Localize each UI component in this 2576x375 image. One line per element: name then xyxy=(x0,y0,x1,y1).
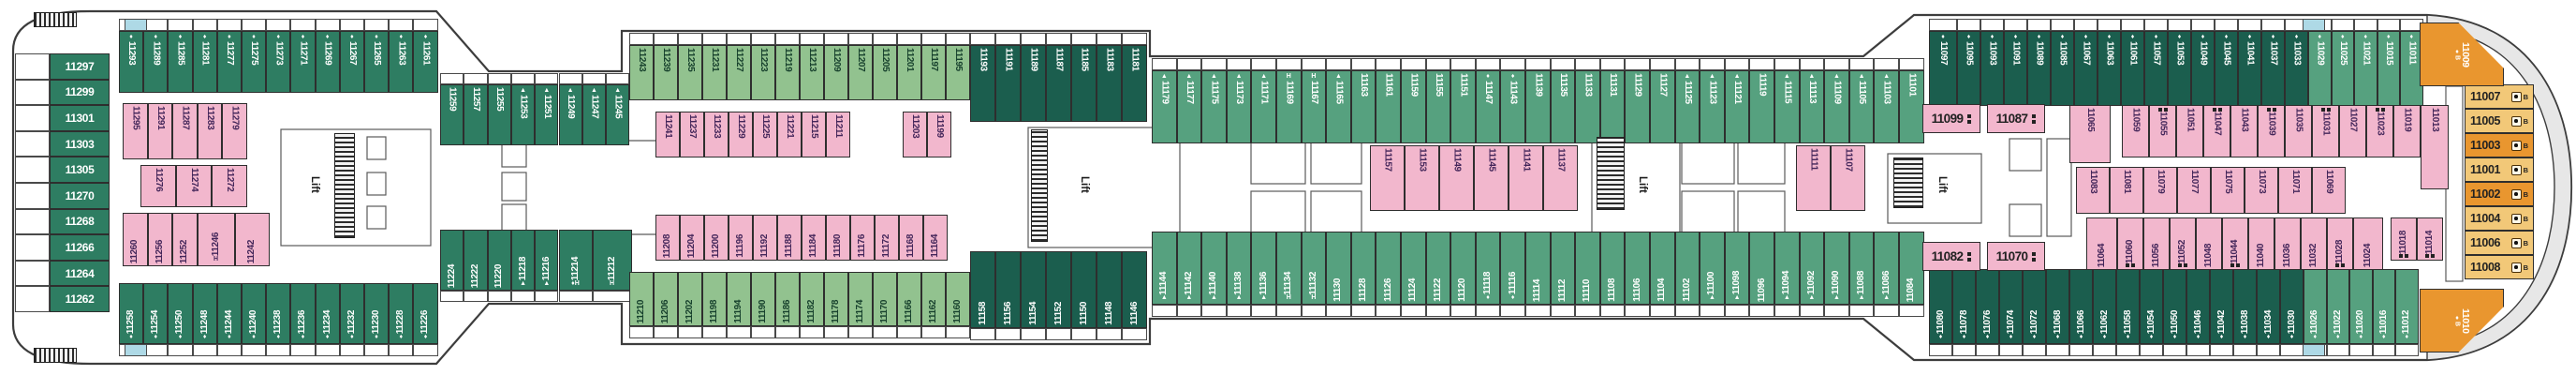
cabin-11238[interactable]: 11238♦ xyxy=(266,283,290,356)
cabin-11116[interactable]: 11116♦ xyxy=(1500,232,1525,317)
cabin-11105[interactable]: ▲11105 xyxy=(1849,58,1875,143)
cabin-11264[interactable]: 11264 xyxy=(15,261,110,287)
cabin-11095[interactable]: ♦11095 xyxy=(1957,19,1980,106)
cabin-11074[interactable]: 11074♦ xyxy=(1999,269,2023,356)
cabin-11057[interactable]: ♦11057 xyxy=(2144,19,2168,106)
cabin-11123[interactable]: ▲11123 xyxy=(1700,58,1725,143)
cabin-11112[interactable]: 11112 xyxy=(1551,232,1576,317)
cabin-11018[interactable]: 11018 xyxy=(2391,217,2417,261)
cabin-11025[interactable]: ♦11025 xyxy=(2332,19,2355,106)
cabin-11241[interactable]: 11241 xyxy=(655,112,680,157)
cabin-11247[interactable]: ▲11247 xyxy=(582,73,606,145)
cabin-11090[interactable]: 11090▲ xyxy=(1824,232,1849,317)
cabin-11092[interactable]: 11092▲ xyxy=(1800,232,1825,317)
cabin-11242[interactable]: 11242 xyxy=(235,213,270,266)
balcony xyxy=(1097,328,1122,340)
cabin-11255[interactable]: 11255 xyxy=(488,73,511,145)
cabin-11274[interactable]: 11274 xyxy=(176,165,212,207)
cabin-11024[interactable]: 11024 xyxy=(2353,217,2383,270)
cabin-11061[interactable]: ♦11061 xyxy=(2121,19,2144,106)
cabin-11303[interactable]: 11303 xyxy=(15,131,110,157)
cabin-11277[interactable]: ♦11277 xyxy=(217,19,242,93)
cabin-11279[interactable]: 11279 xyxy=(222,103,247,159)
cabin-11171[interactable]: ▲11171 xyxy=(1251,58,1276,143)
cabin-11011[interactable]: ♦11011 xyxy=(2400,19,2423,106)
cabin-11257[interactable]: 11257 xyxy=(464,73,487,145)
cabin-11170[interactable]: 11170 xyxy=(873,272,897,338)
cabin-11044[interactable]: 11044 xyxy=(2222,217,2248,270)
cabin-11261[interactable]: ♦11261 xyxy=(413,19,437,93)
cabin-11113[interactable]: ▲11113 xyxy=(1800,58,1825,143)
cabin-11150[interactable]: 11150 xyxy=(1071,251,1097,340)
cabin-11276[interactable]: 11276 xyxy=(140,165,176,207)
cabin-11190[interactable]: 11190 xyxy=(751,272,775,338)
cabin-11226[interactable]: 11226♦ xyxy=(413,283,437,356)
cabin-11114[interactable]: 11114 xyxy=(1525,232,1551,317)
cabin-11084[interactable]: 11084 xyxy=(1899,232,1924,317)
cabin-11134[interactable]: 11134H xyxy=(1276,232,1302,317)
cabin-11184[interactable]: 11184 xyxy=(802,215,826,261)
cabin-11146[interactable]: 11146 xyxy=(1122,251,1147,340)
cabin-11233[interactable]: 11233 xyxy=(704,112,729,157)
cabin-11127[interactable]: 11127 xyxy=(1650,58,1675,143)
cabin-11253[interactable]: ▲11253 xyxy=(511,73,535,145)
cabin-11058[interactable]: 11058♦ xyxy=(2116,269,2140,356)
bed-marker-icon: ▲ xyxy=(1833,73,1840,81)
cabin-11215[interactable]: 11215 xyxy=(802,112,826,157)
cabin-11198[interactable]: 11198 xyxy=(702,272,727,338)
cabin-11139[interactable]: 11139 xyxy=(1525,58,1551,143)
cabin-11235[interactable]: 11235 xyxy=(678,33,702,100)
cabin-11176[interactable]: 11176 xyxy=(850,215,875,261)
cabin-11179[interactable]: ▲11179 xyxy=(1152,58,1177,143)
cabin-11071[interactable]: 11071 xyxy=(2278,167,2312,214)
cabin-11038[interactable]: 11038♦ xyxy=(2233,269,2257,356)
cabin-11259[interactable]: 11259 xyxy=(440,73,464,145)
cabin-11155[interactable]: 11155 xyxy=(1426,58,1451,143)
cabin-11186[interactable]: 11186 xyxy=(775,272,800,338)
cabin-11244[interactable]: 11244♦ xyxy=(217,283,242,356)
balcony xyxy=(316,19,340,31)
cabin-11120[interactable]: 11120 xyxy=(1450,232,1476,317)
cabin-number: 11212 xyxy=(608,257,617,280)
cabin-11263[interactable]: ♦11263 xyxy=(389,19,413,93)
cabin-11100[interactable]: 11100▲ xyxy=(1700,232,1725,317)
cabin-11073[interactable]: 11073 xyxy=(2245,167,2278,214)
cabin-11101[interactable]: 11101 xyxy=(1899,58,1924,143)
cabin-11250[interactable]: 11250♦ xyxy=(168,283,192,356)
cabin-11182[interactable]: 11182 xyxy=(800,272,824,338)
cabin-11013[interactable]: 11013 xyxy=(2421,105,2449,189)
cabin-11037[interactable]: ♦11037 xyxy=(2261,19,2285,106)
cabin-11005[interactable]: 11005B xyxy=(2465,109,2534,133)
cabin-11161[interactable]: 11161 xyxy=(1376,58,1401,143)
cabin-11187[interactable]: 11187 xyxy=(1046,33,1071,122)
cabin-11119[interactable]: 11119 xyxy=(1749,58,1774,143)
cabin-11174[interactable]: 11174 xyxy=(848,272,873,338)
cabin-11229[interactable]: 11229 xyxy=(729,112,753,157)
cabin-11006[interactable]: 11006B xyxy=(2465,231,2534,255)
cabin-11031[interactable]: 11031 xyxy=(2312,105,2339,157)
cabin-11075[interactable]: 11075 xyxy=(2211,167,2245,214)
cabin-11268[interactable]: 11268 xyxy=(15,209,110,235)
cabin-11059[interactable]: 11059 xyxy=(2122,105,2149,157)
bed-marker-icon: ▲ xyxy=(1833,294,1840,302)
cabin-11036[interactable]: 11036 xyxy=(2274,217,2301,270)
cabin-11299[interactable]: 11299 xyxy=(15,80,110,106)
cabin-11204[interactable]: 11204 xyxy=(680,215,704,261)
cabin-11081[interactable]: 11081 xyxy=(2110,167,2143,214)
cabin-11124[interactable]: 11124 xyxy=(1401,232,1426,317)
cabin-11297[interactable]: 11297 xyxy=(15,53,110,80)
cabin-11231[interactable]: 11231 xyxy=(702,33,727,100)
cabin-11232[interactable]: 11232♦ xyxy=(340,283,364,356)
cabin-11227[interactable]: 11227 xyxy=(727,33,751,100)
cabin-11220[interactable]: 11220 xyxy=(488,230,511,302)
cabin-11266[interactable]: 11266 xyxy=(15,234,110,261)
cabin-body: 11172 xyxy=(875,215,899,261)
cabin-11195[interactable]: 11195 xyxy=(946,33,970,100)
cabin-11072[interactable]: 11072♦ xyxy=(2023,269,2046,356)
cabin-11194[interactable]: 11194 xyxy=(727,272,751,338)
cabin-11028[interactable]: 11028 xyxy=(2327,217,2353,270)
cabin-11052[interactable]: 11052 xyxy=(2170,217,2196,270)
balcony xyxy=(535,73,558,84)
cabin-11091[interactable]: ♦11091 xyxy=(2004,19,2027,106)
cabin-11029[interactable]: ♦11029 xyxy=(2308,19,2332,106)
cabin-11056[interactable]: 11056 xyxy=(2143,217,2170,270)
cabin-11166[interactable]: 11166 xyxy=(897,272,921,338)
cabin-11197[interactable]: 11197 xyxy=(921,33,946,100)
cabin-11283[interactable]: 11283 xyxy=(198,103,223,159)
cabin-11183[interactable]: 11183 xyxy=(1097,33,1122,122)
cabin-11192[interactable]: 11192 xyxy=(753,215,777,261)
cabin-11104[interactable]: 11104 xyxy=(1650,232,1675,317)
cabin-11138[interactable]: 11138▲ xyxy=(1227,232,1252,317)
cabin-11049[interactable]: ♦11049 xyxy=(2191,19,2215,106)
balcony xyxy=(15,80,50,106)
cabin-11230[interactable]: 11230♦ xyxy=(364,283,389,356)
cabin-11214[interactable]: 11214♦H xyxy=(559,230,593,302)
cabin-11140[interactable]: 11140▲ xyxy=(1201,232,1227,317)
cabin-11128[interactable]: 11128 xyxy=(1351,232,1376,317)
cabin-11267[interactable]: ♦11267 xyxy=(340,19,364,93)
cabin-11254[interactable]: 11254♦ xyxy=(143,283,168,356)
cabin-11121[interactable]: ▲11121 xyxy=(1725,58,1750,143)
cabin-11078[interactable]: 11078♦ xyxy=(1952,269,1976,356)
cabin-11115[interactable]: ▲11115 xyxy=(1774,58,1800,143)
cabin-11086[interactable]: 11086▲ xyxy=(1874,232,1899,317)
cabin-11172[interactable]: 11172 xyxy=(875,215,899,261)
cabin-11153[interactable]: 11153 xyxy=(1405,145,1439,211)
cabin-11131[interactable]: 11131 xyxy=(1600,58,1626,143)
cabin-11160[interactable]: 11160 xyxy=(946,272,970,338)
cabin-11245[interactable]: ▲11245 xyxy=(606,73,629,145)
cabin-11045[interactable]: ♦11045 xyxy=(2215,19,2238,106)
cabin-11149[interactable]: 11149 xyxy=(1439,145,1474,211)
balcony xyxy=(2098,19,2121,31)
cabin-11213[interactable]: 11213 xyxy=(800,33,824,100)
cabin-11228[interactable]: 11228♦ xyxy=(389,283,413,356)
cabin-11289[interactable]: ♦11289 xyxy=(143,19,168,93)
cabin-11251[interactable]: ▲11251 xyxy=(535,73,558,145)
cabin-11122[interactable]: 11122 xyxy=(1426,232,1451,317)
cabin-11068[interactable]: 11068♦ xyxy=(2046,269,2069,356)
cabin-11167[interactable]: H11167 xyxy=(1302,58,1327,143)
cabin-11147[interactable]: ♦11147 xyxy=(1476,58,1501,143)
balcony xyxy=(168,344,192,356)
cabin-11111[interactable]: 11111 xyxy=(1796,145,1831,211)
cabin-11206[interactable]: 11206 xyxy=(654,272,678,338)
cabin-11181[interactable]: 11181 xyxy=(1122,33,1147,122)
cabin-11224[interactable]: 11224 xyxy=(440,230,464,302)
cabin-11096[interactable]: 11096 xyxy=(1749,232,1774,317)
cabin-11012[interactable]: 11012♦ xyxy=(2395,269,2419,356)
cabin-11305[interactable]: 11305 xyxy=(15,157,110,183)
cabin-11002[interactable]: 11002B xyxy=(2465,182,2534,206)
cabin-11089[interactable]: ♦11089 xyxy=(2027,19,2051,106)
cabin-number: 11092 xyxy=(1807,271,1817,294)
cabin-11132[interactable]: 11132H xyxy=(1302,232,1327,317)
cabin-11165[interactable]: ▲11165 xyxy=(1326,58,1351,143)
cabin-number: 11109 xyxy=(1832,81,1841,104)
cabin-11054[interactable]: 11054♦ xyxy=(2140,269,2163,356)
cabin-11260[interactable]: 11260 xyxy=(123,213,148,266)
cabin-11265[interactable]: ♦11265 xyxy=(364,19,389,93)
cabin-11157[interactable]: 11157 xyxy=(1370,145,1405,211)
cabin-11032[interactable]: 11032 xyxy=(2301,217,2327,270)
cabin-11103[interactable]: ▲11103 xyxy=(1874,58,1899,143)
cabin-11050[interactable]: 11050♦ xyxy=(2163,269,2186,356)
cabin-11185[interactable]: 11185 xyxy=(1071,33,1097,122)
cabin-11151[interactable]: 11151 xyxy=(1450,58,1476,143)
cabin-11076[interactable]: 11076♦ xyxy=(1976,269,1999,356)
cabin-11118[interactable]: 11118♦ xyxy=(1476,232,1501,317)
cabin-11202[interactable]: 11202 xyxy=(678,272,702,338)
cabin-body: 11268 xyxy=(50,209,110,235)
cabin-11020[interactable]: 11020♦ xyxy=(2349,269,2373,356)
cabin-11069[interactable]: 11069 xyxy=(2312,167,2346,214)
cabin-11107[interactable]: 11107 xyxy=(1831,145,1865,211)
cabin-11014[interactable]: 11014 xyxy=(2417,217,2443,261)
cabin-11008[interactable]: 11008B xyxy=(2465,255,2534,279)
cabin-11291[interactable]: 11291 xyxy=(148,103,173,159)
cabin-11109[interactable]: ▲11109 xyxy=(1824,58,1849,143)
cabin-11143[interactable]: ♦11143 xyxy=(1500,58,1525,143)
cabin-11271[interactable]: ♦11271 xyxy=(290,19,315,93)
cabin-11015[interactable]: ♦11015 xyxy=(2377,19,2401,106)
cabin-11221[interactable]: 11221 xyxy=(777,112,802,157)
cabin-11046[interactable]: 11046♦ xyxy=(2186,269,2210,356)
cabin-11039[interactable]: 11039 xyxy=(2258,105,2285,157)
cabin-11062[interactable]: 11062♦ xyxy=(2093,269,2116,356)
cabin-11191[interactable]: 11191 xyxy=(995,33,1021,122)
cabin-11222[interactable]: 11222 xyxy=(464,230,487,302)
cabin-11272[interactable]: 11272 xyxy=(212,165,247,207)
cabin-11087[interactable]: 11087 xyxy=(1987,104,2045,133)
cabin-11070[interactable]: 11070 xyxy=(1987,242,2045,271)
cabin-11077[interactable]: 11077 xyxy=(2177,167,2211,214)
cabin-11252[interactable]: 11252 xyxy=(172,213,198,266)
cabin-11189[interactable]: 11189 xyxy=(1021,33,1046,122)
cabin-11234[interactable]: 11234♦ xyxy=(316,283,340,356)
cabin-11281[interactable]: ♦11281 xyxy=(193,19,217,93)
cabin-11178[interactable]: 11178 xyxy=(824,272,848,338)
cabin-11201[interactable]: 11201 xyxy=(897,33,921,100)
cabin-11040[interactable]: 11040 xyxy=(2248,217,2274,270)
cabin-11088[interactable]: 11088▲ xyxy=(1849,232,1875,317)
cabin-11275[interactable]: ♦11275 xyxy=(242,19,266,93)
cabin-11094[interactable]: 11094▲ xyxy=(1774,232,1800,317)
cabin-11248[interactable]: 11248♦ xyxy=(193,283,217,356)
cabin-11133[interactable]: 11133 xyxy=(1575,58,1600,143)
cabin-11053[interactable]: ♦11053 xyxy=(2168,19,2191,106)
cabin-11243[interactable]: 11243 xyxy=(629,33,654,100)
cabin-11211[interactable]: 11211 xyxy=(826,112,850,157)
cabin-11200[interactable]: 11200 xyxy=(704,215,729,261)
cabin-11098[interactable]: 11098▲ xyxy=(1725,232,1750,317)
twin-square-icon xyxy=(2032,114,2036,118)
cabin-11212[interactable]: 11212H xyxy=(593,230,632,302)
cabin-11270[interactable]: 11270 xyxy=(15,183,110,209)
cabin-11055[interactable]: 11055 xyxy=(2149,105,2176,157)
cabin-11225[interactable]: 11225 xyxy=(753,112,777,157)
cabin-11199[interactable]: 11199 xyxy=(927,112,951,157)
cabin-11082[interactable]: 11082 xyxy=(1922,242,1980,271)
cabin-11168[interactable]: 11168 xyxy=(899,215,923,261)
cabin-11237[interactable]: 11237 xyxy=(680,112,704,157)
cabin-11180[interactable]: 11180 xyxy=(826,215,850,261)
cabin-11019[interactable]: 11019 xyxy=(2393,105,2421,157)
cabin-11106[interactable]: 11106 xyxy=(1625,232,1650,317)
cabin-11022[interactable]: 11022♦ xyxy=(2327,269,2350,356)
cabin-11154[interactable]: 11154 xyxy=(1021,251,1046,340)
cabin-11063[interactable]: ♦11063 xyxy=(2098,19,2121,106)
balcony xyxy=(511,291,535,302)
cabin-11021[interactable]: ♦11021 xyxy=(2354,19,2377,106)
cabin-11130[interactable]: 11130 xyxy=(1326,232,1351,317)
cabin-11273[interactable]: ♦11273 xyxy=(266,19,290,93)
cabin-11223[interactable]: 11223 xyxy=(751,33,775,100)
cabin-11295[interactable]: 11295 xyxy=(123,103,148,159)
cabin-11246[interactable]: 11246H xyxy=(198,213,235,266)
cabin-11144[interactable]: 11144▲ xyxy=(1152,232,1177,317)
cabin-11027[interactable]: 11027 xyxy=(2339,105,2366,157)
cabin-11142[interactable]: 11142▲ xyxy=(1177,232,1202,317)
cabin-11205[interactable]: 11205 xyxy=(873,33,897,100)
cabin-11064[interactable]: 11064 xyxy=(2086,217,2117,270)
cabin-11051[interactable]: 11051 xyxy=(2176,105,2203,157)
cabin-11218[interactable]: 11218▲ xyxy=(511,230,535,302)
cabin-11240[interactable]: 11240♦ xyxy=(242,283,266,356)
cabin-11262[interactable]: 11262 xyxy=(15,286,110,312)
cabin-11209[interactable]: 11209 xyxy=(824,33,848,100)
cabin-11287[interactable]: 11287 xyxy=(172,103,198,159)
cabin-11085[interactable]: ♦11085 xyxy=(2051,19,2074,106)
cabin-11030[interactable]: 11030♦ xyxy=(2280,269,2304,356)
cabin-11301[interactable]: 11301 xyxy=(15,105,110,131)
cabin-11067[interactable]: ♦11067 xyxy=(2074,19,2098,106)
cabin-11236[interactable]: 11236♦ xyxy=(290,283,315,356)
cabin-11164[interactable]: 11164 xyxy=(923,215,948,261)
cabin-11136[interactable]: 11136▲ xyxy=(1251,232,1276,317)
cabin-11060[interactable]: 11060 xyxy=(2117,217,2143,270)
cabin-11102[interactable]: 11102 xyxy=(1675,232,1700,317)
cabin-11163[interactable]: 11163 xyxy=(1351,58,1376,143)
cabin-11159[interactable]: 11159 xyxy=(1401,58,1426,143)
cabin-11083[interactable]: 11083 xyxy=(2076,167,2110,214)
cabin-11152[interactable]: 11152 xyxy=(1046,251,1071,340)
cabin-11126[interactable]: 11126 xyxy=(1376,232,1401,317)
cabin-11125[interactable]: ▲11125 xyxy=(1675,58,1700,143)
cabin-11080[interactable]: 11080♦ xyxy=(1929,269,1952,356)
cabin-11016[interactable]: 11016♦ xyxy=(2373,269,2396,356)
cabin-11129[interactable]: 11129 xyxy=(1625,58,1650,143)
cabin-11023[interactable]: 11023 xyxy=(2366,105,2393,157)
cabin-11041[interactable]: ♦11041 xyxy=(2238,19,2261,106)
cabin-11216[interactable]: 11216▲ xyxy=(535,230,558,302)
balcony xyxy=(1824,305,1849,317)
cabin-11196[interactable]: 11196 xyxy=(729,215,753,261)
cabin-11269[interactable]: ♦11269 xyxy=(316,19,340,93)
cabin-11004[interactable]: 11004B xyxy=(2465,206,2534,231)
cabin-11033[interactable]: ♦11033 xyxy=(2285,19,2308,106)
cabin-11173[interactable]: ▲11173 xyxy=(1227,58,1252,143)
cabin-11177[interactable]: ▲11177 xyxy=(1177,58,1202,143)
cabin-11035[interactable]: 11035 xyxy=(2285,105,2312,157)
cabin-11219[interactable]: 11219 xyxy=(775,33,800,100)
balcony xyxy=(15,157,50,183)
cabin-11169[interactable]: H11169 xyxy=(1276,58,1302,143)
cabin-11108[interactable]: 11108 xyxy=(1600,232,1626,317)
cabin-11207[interactable]: 11207 xyxy=(848,33,873,100)
cabin-11065[interactable]: 11065 xyxy=(2069,105,2111,163)
cabin-11135[interactable]: 11135 xyxy=(1551,58,1576,143)
cabin-11047[interactable]: 11047 xyxy=(2203,105,2230,157)
cabin-11175[interactable]: ▲11175 xyxy=(1201,58,1227,143)
cabin-11042[interactable]: 11042♦ xyxy=(2210,269,2233,356)
cabin-11193[interactable]: 11193 xyxy=(970,33,995,122)
cabin-11034[interactable]: 11034♦ xyxy=(2257,269,2280,356)
cabin-11285[interactable]: ♦11285 xyxy=(168,19,192,93)
cabin-11110[interactable]: 11110 xyxy=(1575,232,1600,317)
cabin-11079[interactable]: 11079 xyxy=(2143,167,2177,214)
cabin-11048[interactable]: 11048 xyxy=(2196,217,2222,270)
cabin-11208[interactable]: 11208 xyxy=(655,215,680,261)
cabin-11210[interactable]: 11210 xyxy=(629,272,654,338)
cabin-11001[interactable]: 11001B xyxy=(2465,157,2534,182)
cabin-11141[interactable]: 11141 xyxy=(1509,145,1543,211)
cabin-11097[interactable]: ♦11097 xyxy=(1929,19,1957,106)
cabin-11239[interactable]: 11239 xyxy=(654,33,678,100)
cabin-11256[interactable]: 11256 xyxy=(148,213,173,266)
cabin-11137[interactable]: 11137 xyxy=(1543,145,1578,211)
cabin-11203[interactable]: 11203 xyxy=(903,112,927,157)
cabin-11188[interactable]: 11188 xyxy=(777,215,802,261)
cabin-11003[interactable]: 11003B xyxy=(2465,133,2534,157)
cabin-11158[interactable]: 11158 xyxy=(970,251,995,340)
cabin-11099[interactable]: 11099 xyxy=(1922,104,1980,133)
cabin-11148[interactable]: 11148 xyxy=(1097,251,1122,340)
cabin-11093[interactable]: ♦11093 xyxy=(1980,19,2004,106)
cabin-11162[interactable]: 11162 xyxy=(921,272,946,338)
cabin-11066[interactable]: 11066♦ xyxy=(2069,269,2093,356)
cabin-11249[interactable]: ▲11249 xyxy=(559,73,582,145)
cabin-11156[interactable]: 11156 xyxy=(995,251,1021,340)
cabin-11145[interactable]: 11145 xyxy=(1474,145,1509,211)
cabin-11043[interactable]: 11043 xyxy=(2230,105,2258,157)
cabin-11007[interactable]: 11007B xyxy=(2465,84,2534,109)
